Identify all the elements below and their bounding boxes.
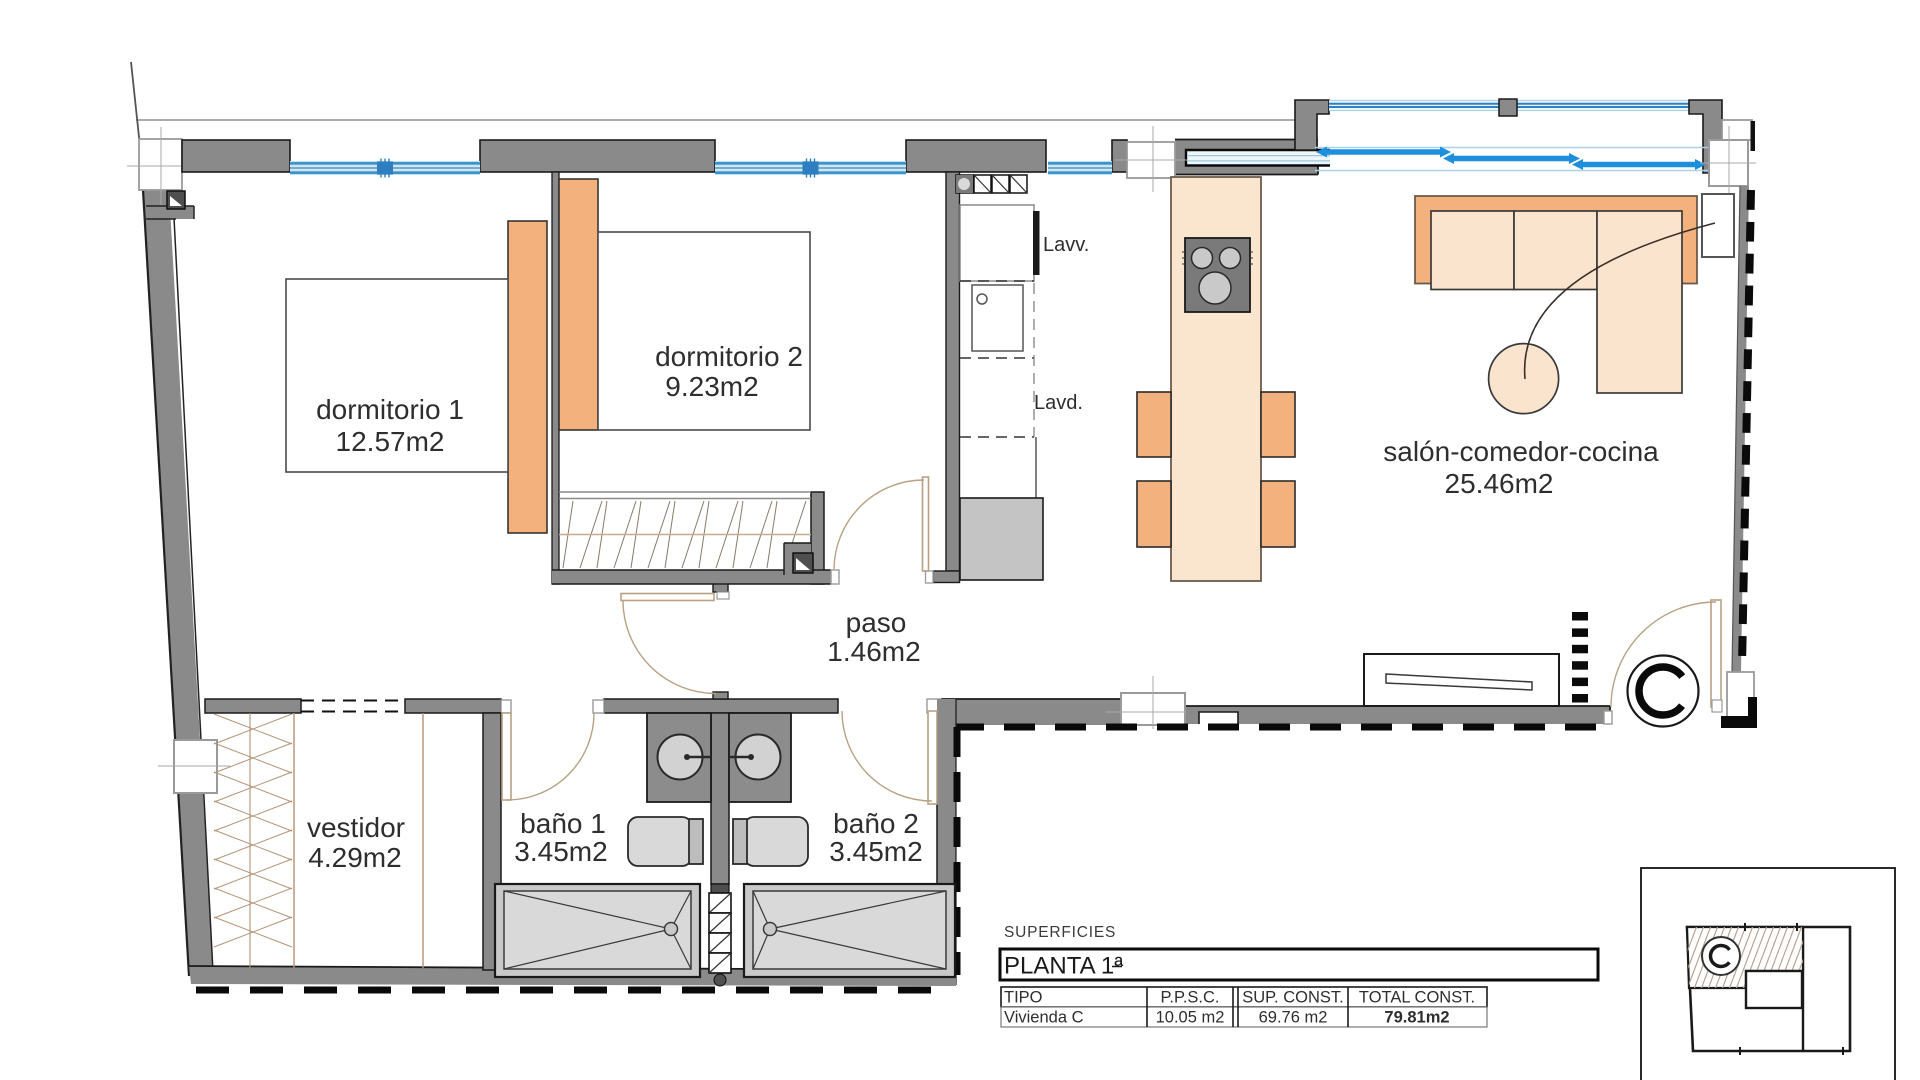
svg-text:69.76 m2: 69.76 m2 <box>1259 1009 1328 1027</box>
svg-text:TIPO: TIPO <box>1004 989 1043 1007</box>
svg-text:PLANTA 1ª: PLANTA 1ª <box>1004 953 1123 980</box>
svg-text:paso: paso <box>846 607 907 638</box>
svg-text:dormitorio 2: dormitorio 2 <box>655 341 803 372</box>
svg-text:12.57m2: 12.57m2 <box>336 426 445 457</box>
svg-text:4.29m2: 4.29m2 <box>308 842 401 873</box>
svg-text:dormitorio 1: dormitorio 1 <box>316 394 464 425</box>
svg-text:79.81m2: 79.81m2 <box>1384 1009 1449 1027</box>
svg-text:TOTAL CONST.: TOTAL CONST. <box>1359 989 1475 1007</box>
svg-text:Lavd.: Lavd. <box>1034 392 1083 414</box>
svg-text:baño 2: baño 2 <box>833 808 919 839</box>
svg-text:vestidor: vestidor <box>307 812 405 843</box>
svg-text:25.46m2: 25.46m2 <box>1445 468 1554 499</box>
svg-text:Vivienda C: Vivienda C <box>1004 1009 1084 1027</box>
svg-text:10.05 m2: 10.05 m2 <box>1156 1009 1225 1027</box>
svg-text:SUPERFICIES: SUPERFICIES <box>1004 924 1116 941</box>
svg-text:baño 1: baño 1 <box>520 808 606 839</box>
svg-text:9.23m2: 9.23m2 <box>665 371 758 402</box>
svg-text:SUP. CONST.: SUP. CONST. <box>1242 989 1343 1007</box>
svg-text:1.46m2: 1.46m2 <box>827 636 920 667</box>
svg-text:3.45m2: 3.45m2 <box>514 836 607 867</box>
svg-text:Lavv.: Lavv. <box>1043 234 1089 256</box>
svg-text:3.45m2: 3.45m2 <box>829 836 922 867</box>
svg-text:P.P.S.C.: P.P.S.C. <box>1160 989 1219 1007</box>
svg-text:salón-comedor-cocina: salón-comedor-cocina <box>1383 436 1659 467</box>
